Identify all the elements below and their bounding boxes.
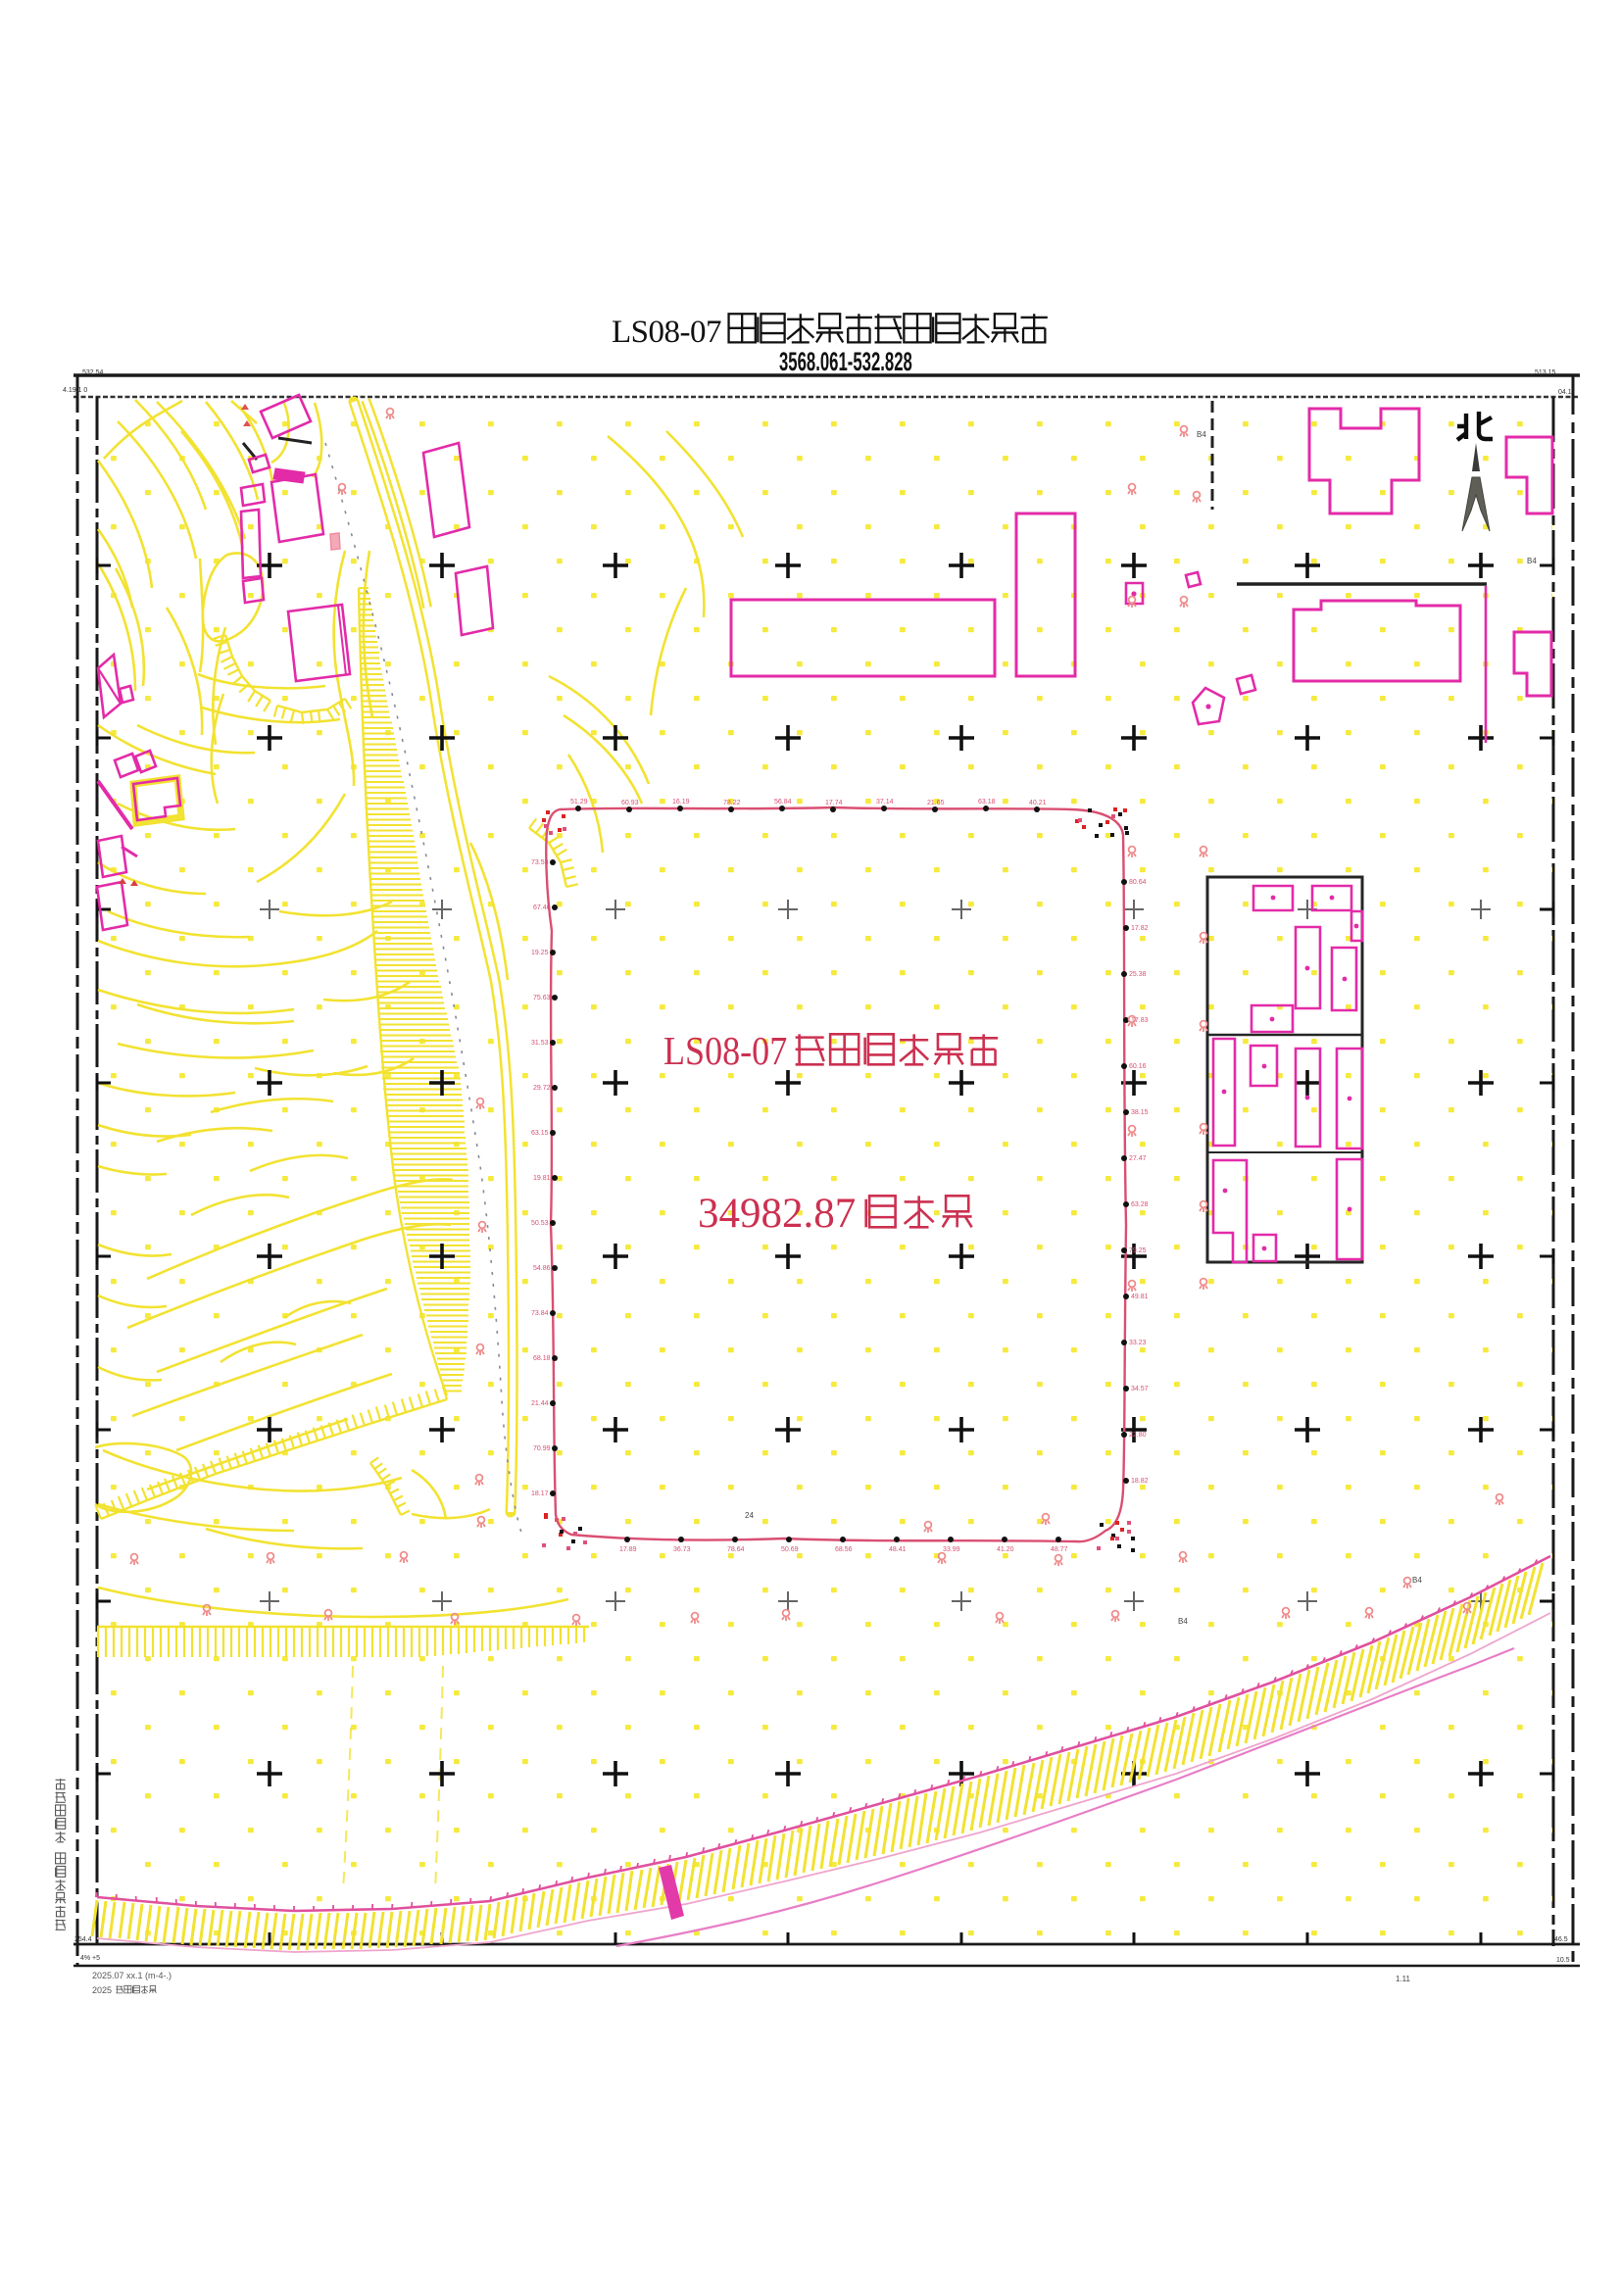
svg-text:51.29: 51.29	[570, 799, 588, 806]
svg-text:4% +5: 4% +5	[80, 1955, 100, 1962]
svg-text:16.19: 16.19	[672, 799, 690, 806]
svg-text:18.17: 18.17	[531, 1490, 549, 1497]
svg-text:79.25: 79.25	[1129, 1247, 1147, 1254]
svg-text:18.82: 18.82	[1131, 1478, 1149, 1485]
svg-text:22.80: 22.80	[1129, 1432, 1147, 1439]
svg-text:37.14: 37.14	[876, 799, 894, 806]
svg-text:68.56: 68.56	[835, 1546, 853, 1553]
svg-text:31.53: 31.53	[531, 1040, 549, 1047]
svg-text:48.41: 48.41	[889, 1546, 907, 1553]
svg-text:B4: B4	[1412, 1576, 1422, 1585]
svg-text:73.84: 73.84	[531, 1310, 549, 1317]
svg-text:70.99: 70.99	[533, 1445, 551, 1452]
svg-text:40.21: 40.21	[1029, 800, 1047, 806]
svg-text:254.4: 254.4	[74, 1936, 92, 1943]
svg-text:49.81: 49.81	[1131, 1294, 1149, 1300]
svg-text:2025.07 xx.1 (m-4-.): 2025.07 xx.1 (m-4-.)	[92, 1971, 172, 1980]
svg-text:78.22: 78.22	[723, 800, 741, 806]
svg-text:33.99: 33.99	[943, 1546, 960, 1553]
svg-text:LS08-07: LS08-07	[612, 315, 721, 350]
svg-text:10.5: 10.5	[1556, 1957, 1570, 1964]
svg-text:3568.061-532.828: 3568.061-532.828	[779, 347, 912, 376]
svg-text:B4: B4	[1178, 1617, 1188, 1626]
svg-text:2025: 2025	[92, 1985, 112, 1995]
svg-text:34982.87: 34982.87	[698, 1191, 856, 1237]
svg-text:78.64: 78.64	[727, 1546, 745, 1553]
svg-text:50.69: 50.69	[781, 1546, 799, 1553]
svg-text:63.28: 63.28	[1131, 1201, 1149, 1208]
svg-text:41.20: 41.20	[997, 1546, 1014, 1553]
svg-text:63.15: 63.15	[531, 1130, 549, 1137]
svg-text:60.93: 60.93	[621, 800, 639, 806]
svg-text:29.72: 29.72	[533, 1085, 551, 1092]
svg-text:25.38: 25.38	[1129, 971, 1147, 978]
svg-text:B4: B4	[1527, 557, 1537, 565]
svg-text:04.1: 04.1	[1558, 389, 1572, 396]
svg-text:21.65: 21.65	[927, 800, 945, 806]
svg-text:17.74: 17.74	[825, 800, 843, 806]
svg-text:17.89: 17.89	[619, 1546, 637, 1553]
svg-text:24: 24	[745, 1511, 754, 1520]
svg-text:532 54: 532 54	[82, 369, 104, 376]
svg-text:B4: B4	[1197, 430, 1206, 439]
svg-text:27.47: 27.47	[1129, 1155, 1147, 1162]
svg-text:21.44: 21.44	[531, 1400, 549, 1407]
svg-text:33.23: 33.23	[1129, 1340, 1147, 1346]
svg-text:46.5: 46.5	[1554, 1936, 1568, 1943]
svg-text:34.57: 34.57	[1131, 1386, 1149, 1392]
svg-text:56.84: 56.84	[774, 799, 792, 806]
svg-text:38.15: 38.15	[1131, 1109, 1149, 1116]
svg-text:60.16: 60.16	[1129, 1063, 1147, 1070]
svg-text:80.64: 80.64	[1129, 879, 1147, 886]
svg-text:73.53: 73.53	[531, 859, 549, 866]
svg-text:17.82: 17.82	[1131, 925, 1149, 932]
svg-text:75.63: 75.63	[533, 995, 551, 1001]
svg-text:1.11: 1.11	[1396, 1975, 1411, 1983]
svg-text:68.18: 68.18	[533, 1355, 551, 1362]
svg-text:19.81: 19.81	[533, 1175, 551, 1182]
svg-text:54.86: 54.86	[533, 1265, 551, 1272]
svg-text:513 15: 513 15	[1535, 369, 1556, 376]
svg-text:36.73: 36.73	[673, 1546, 691, 1553]
svg-text:19.25: 19.25	[531, 950, 549, 956]
svg-text:LS08-07: LS08-07	[663, 1030, 787, 1074]
svg-text:50.53: 50.53	[531, 1220, 549, 1227]
svg-text:63.18: 63.18	[978, 799, 996, 806]
svg-text:4.19.1 0: 4.19.1 0	[63, 387, 87, 394]
svg-text:48.77: 48.77	[1051, 1546, 1068, 1553]
svg-text:67.46: 67.46	[533, 904, 551, 911]
